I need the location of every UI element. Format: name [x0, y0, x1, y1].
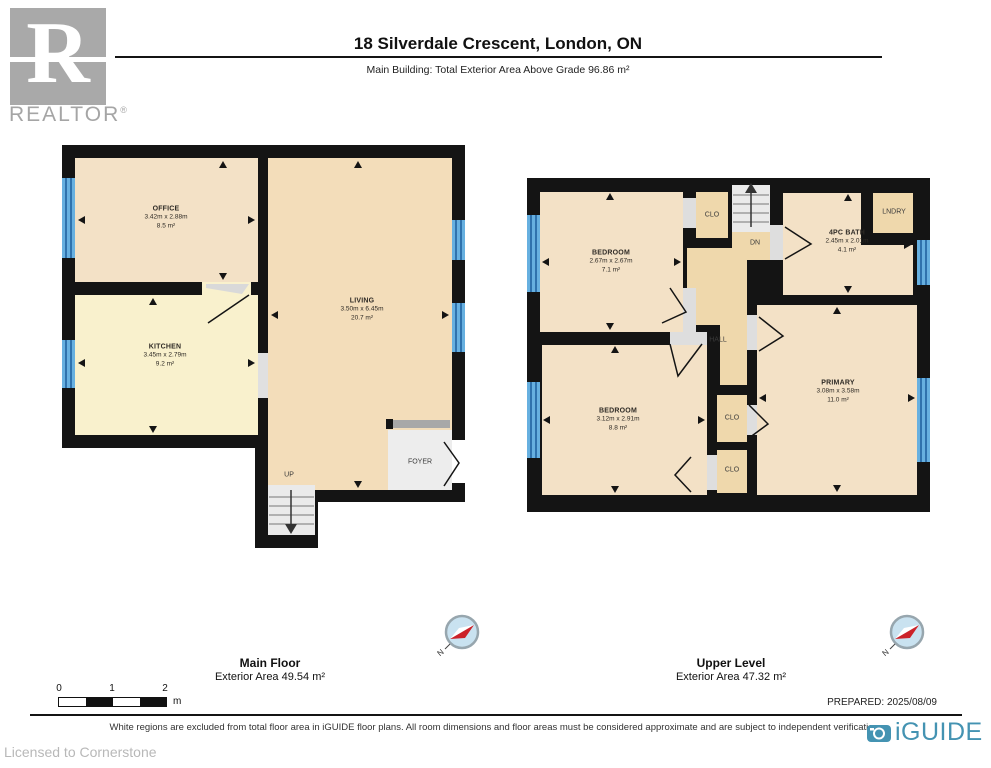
floor-plan-main	[55, 135, 475, 555]
room-area: 9.2 m²	[144, 361, 187, 370]
scale-bar-ticks: 0 1 2	[52, 683, 172, 695]
room-name: CLO	[725, 413, 739, 422]
room-area: 20.7 m²	[341, 315, 384, 324]
stairs-dn-label: DN	[750, 238, 760, 247]
room-dims: 3.42m x 2.88m	[145, 214, 188, 223]
floorplan-page: R REALTOR® 18 Silverdale Crescent, Londo…	[0, 0, 991, 768]
scale-tick-2: 2	[162, 683, 168, 694]
room-label-foyer: FOYER	[408, 457, 432, 466]
room-label-lndry: LNDRY	[882, 207, 906, 216]
scale-bar	[58, 697, 167, 707]
room-name: KITCHEN	[144, 343, 187, 352]
main-floor-caption: Main Floor Exterior Area 49.54 m²	[215, 656, 325, 683]
room-dims: 3.50m x 6.45m	[341, 306, 384, 315]
room-name: LIVING	[341, 297, 384, 306]
room-name: FOYER	[408, 457, 432, 466]
title-divider	[115, 56, 882, 58]
room-label-primary: PRIMARY 3.08m x 3.58m 11.0 m²	[817, 379, 860, 406]
room-name: CLO	[725, 465, 739, 474]
room-area: 8.5 m²	[145, 223, 188, 232]
room-dims: 2.45m x 2.01m	[826, 238, 869, 247]
room-label-clo-mid: CLO	[725, 413, 739, 422]
realtor-wordmark: REALTOR®	[9, 103, 129, 127]
license-text: Licensed to Cornerstone	[4, 744, 157, 760]
room-area: 8.8 m²	[597, 425, 640, 434]
room-area: 4.1 m²	[826, 247, 869, 256]
page-title: 18 Silverdale Crescent, London, ON	[354, 34, 642, 54]
floor-name: Main Floor	[215, 656, 325, 670]
iguide-logo-icon	[866, 722, 892, 744]
room-name: 4PC BATH	[826, 229, 869, 238]
room-name: LNDRY	[882, 207, 906, 216]
page-subtitle: Main Building: Total Exterior Area Above…	[366, 64, 629, 76]
scale-tick-1: 1	[109, 683, 115, 694]
realtor-logo-stripe	[10, 57, 106, 62]
room-area: 7.1 m²	[590, 267, 633, 276]
floor-area: Exterior Area 49.54 m²	[215, 671, 325, 683]
realtor-r-letter: R	[26, 10, 90, 98]
disclaimer-text: White regions are excluded from total fl…	[0, 722, 991, 733]
room-label-bedroom1: BEDROOM 2.67m x 2.67m 7.1 m²	[590, 249, 633, 276]
room-dims: 3.08m x 3.58m	[817, 388, 860, 397]
room-label-bedroom2: BEDROOM 3.12m x 2.91m 8.8 m²	[597, 407, 640, 434]
scale-unit: m	[173, 696, 181, 707]
upper-level-caption: Upper Level Exterior Area 47.32 m²	[676, 656, 786, 683]
room-label-clo-top: CLO	[705, 210, 719, 219]
prepared-date: PREPARED: 2025/08/09	[827, 697, 937, 708]
realtor-brand: REALTOR	[9, 103, 120, 126]
room-area: 11.0 m²	[817, 397, 860, 406]
registered-mark: ®	[120, 105, 129, 115]
compass-icon: N	[437, 611, 483, 657]
room-label-kitchen: KITCHEN 3.45m x 2.79m 9.2 m²	[144, 343, 187, 370]
room-label-hall: HALL	[709, 335, 727, 344]
iguide-logo: iGUIDE	[866, 718, 983, 747]
room-dims: 3.45m x 2.79m	[144, 352, 187, 361]
room-name: BEDROOM	[597, 407, 640, 416]
floor-name: Upper Level	[676, 656, 786, 670]
room-label-bath: 4PC BATH 2.45m x 2.01m 4.1 m²	[826, 229, 869, 256]
compass-icon: N	[882, 611, 928, 657]
room-name: OFFICE	[145, 205, 188, 214]
compass-n-label: N	[437, 647, 446, 657]
room-dims: 2.67m x 2.67m	[590, 258, 633, 267]
room-label-clo-bot: CLO	[725, 465, 739, 474]
room-name: PRIMARY	[817, 379, 860, 388]
room-label-office: OFFICE 3.42m x 2.88m 8.5 m²	[145, 205, 188, 232]
floor-area: Exterior Area 47.32 m²	[676, 671, 786, 683]
stairs-up-label: UP	[284, 470, 294, 479]
kitchen-living-opening	[258, 353, 268, 398]
stairs-down	[268, 485, 315, 535]
iguide-wordmark: iGUIDE	[895, 718, 983, 747]
realtor-logo-icon: R	[10, 8, 106, 105]
compass-n-label: N	[882, 647, 891, 657]
room-name: HALL	[709, 335, 727, 344]
footer-divider	[30, 714, 962, 716]
room-name: BEDROOM	[590, 249, 633, 258]
room-label-living: LIVING 3.50m x 6.45m 20.7 m²	[341, 297, 384, 324]
room-label-dn: DN	[750, 238, 760, 247]
scale-tick-0: 0	[56, 683, 62, 694]
room-name: CLO	[705, 210, 719, 219]
stairs-up	[732, 183, 770, 232]
floor-plan-upper	[520, 165, 940, 515]
room-label-up: UP	[284, 470, 294, 479]
room-dims: 3.12m x 2.91m	[597, 416, 640, 425]
